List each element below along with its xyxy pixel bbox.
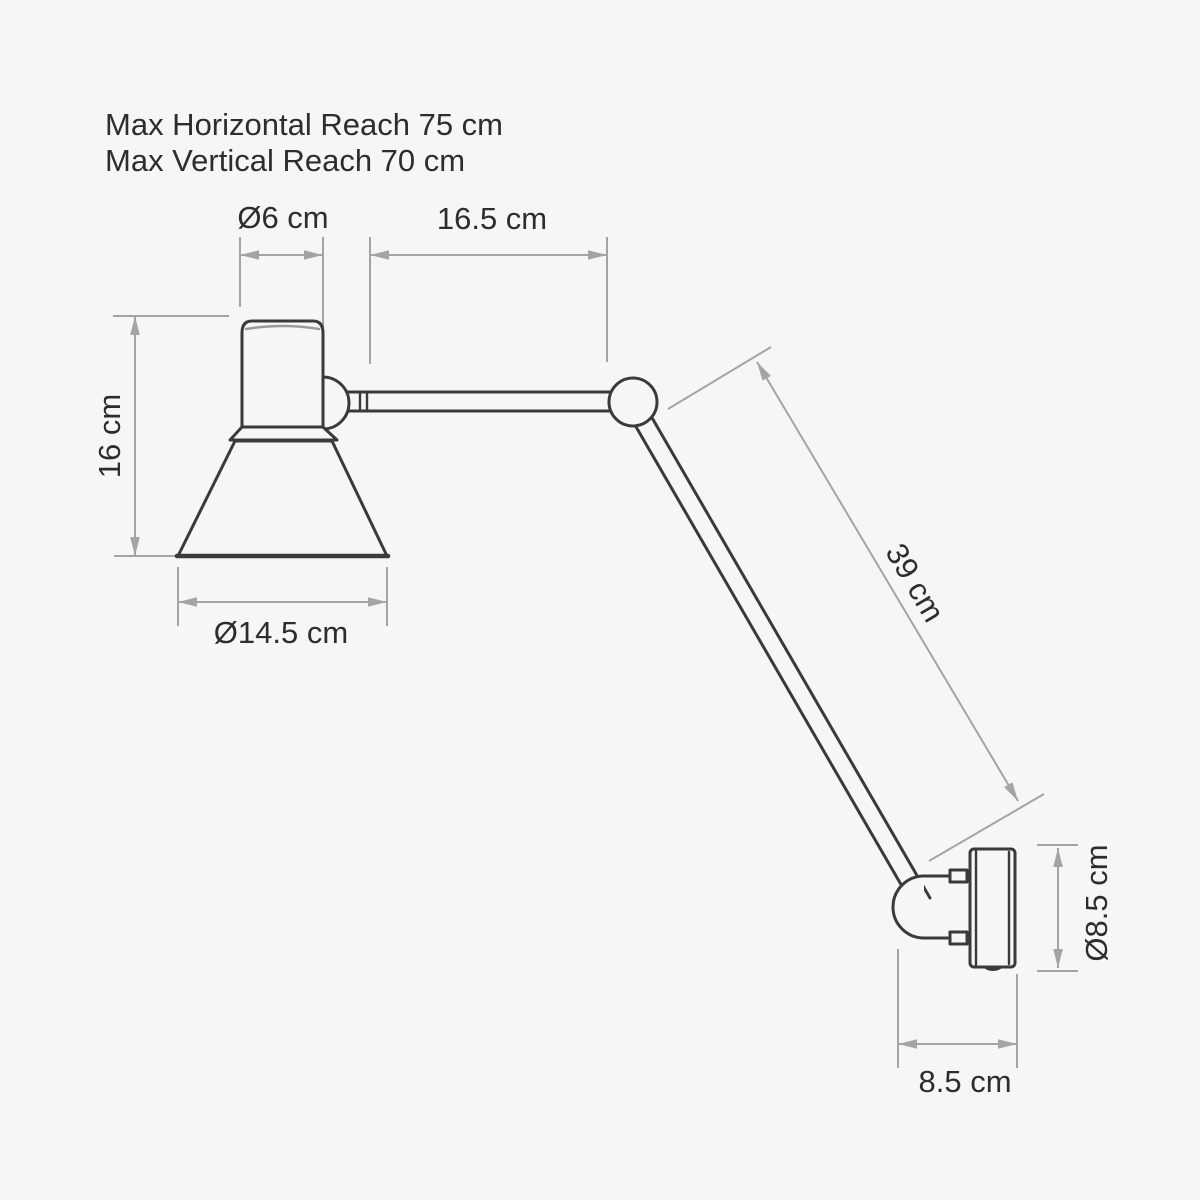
wall-plate-depth-label: 8.5 cm xyxy=(918,1064,1011,1099)
cap-diameter-label: Ø6 cm xyxy=(237,200,328,235)
lower-arm-left-edge xyxy=(635,425,914,907)
wall-bracket xyxy=(893,876,924,938)
lower-arm-length-label: 39 cm xyxy=(879,537,952,628)
diagram-svg: Max Horizontal Reach 75 cm Max Vertical … xyxy=(0,0,1200,1200)
upper-arm-length-label: 16.5 cm xyxy=(437,201,547,236)
head-height-label: 16 cm xyxy=(92,394,127,478)
max-horizontal-reach-label: Max Horizontal Reach 75 cm xyxy=(105,107,503,142)
ext-line-lower-arm-top xyxy=(668,347,771,409)
lamp-flange xyxy=(230,427,337,440)
wall-bracket-clamp-top xyxy=(950,870,967,882)
shade-diameter-label: Ø14.5 cm xyxy=(214,615,348,650)
wall-bracket-clamp-bottom xyxy=(950,932,967,944)
lower-arm-right-edge xyxy=(651,416,930,898)
max-vertical-reach-label: Max Vertical Reach 70 cm xyxy=(105,143,465,178)
dim-line-lower-arm xyxy=(757,362,1018,801)
lamp-cap xyxy=(242,321,323,430)
elbow-joint xyxy=(609,378,657,426)
wall-plate-cable-bump xyxy=(981,966,1005,971)
lamp-dimension-diagram: Max Horizontal Reach 75 cm Max Vertical … xyxy=(0,0,1200,1200)
wall-plate-diameter-label: Ø8.5 cm xyxy=(1079,844,1114,961)
lamp-shade xyxy=(178,441,387,556)
head-joint xyxy=(323,377,349,429)
